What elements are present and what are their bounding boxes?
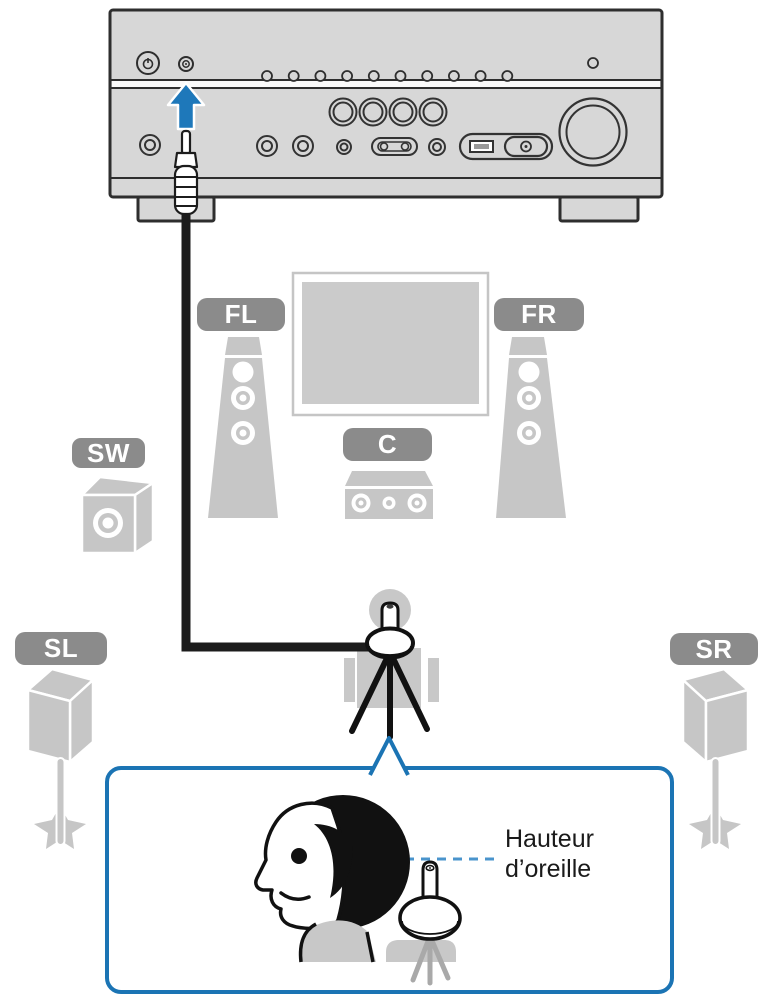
speaker-stand-pole [57, 758, 65, 845]
tv [293, 273, 488, 415]
surround-left-speaker [28, 669, 93, 849]
speaker-label-sr: SR [670, 633, 758, 665]
power-button-icon [137, 52, 159, 74]
ear-height-label: Hauteur d’oreille [505, 824, 594, 884]
diagram-art [0, 0, 772, 1000]
receiver-foot-right [560, 197, 638, 221]
ear-height-line2: d’oreille [505, 854, 594, 884]
mic-jack-icon [179, 57, 193, 71]
tv-screen [302, 282, 479, 404]
tuner-control [372, 138, 417, 155]
ypao-setup-diagram: FL FR C SW SL SR Hauteur d’oreille [0, 0, 772, 1000]
center-speaker [345, 471, 433, 519]
eye [291, 848, 307, 864]
front-left-speaker [208, 337, 278, 518]
volume-knob [560, 99, 627, 166]
speaker-label-fr: FR [494, 298, 584, 331]
speaker-label-sw: SW [72, 438, 145, 468]
front-right-speaker [496, 337, 566, 518]
info-button [588, 58, 598, 68]
ear-height-line1: Hauteur [505, 824, 594, 854]
subwoofer [82, 477, 153, 553]
usb-port-group [460, 134, 552, 159]
surround-right-speaker [683, 669, 748, 849]
speaker-label-fl: FL [197, 298, 285, 331]
speaker-stand-pole [712, 758, 720, 845]
speaker-label-c: C [343, 428, 432, 461]
speaker-label-sl: SL [15, 632, 107, 665]
